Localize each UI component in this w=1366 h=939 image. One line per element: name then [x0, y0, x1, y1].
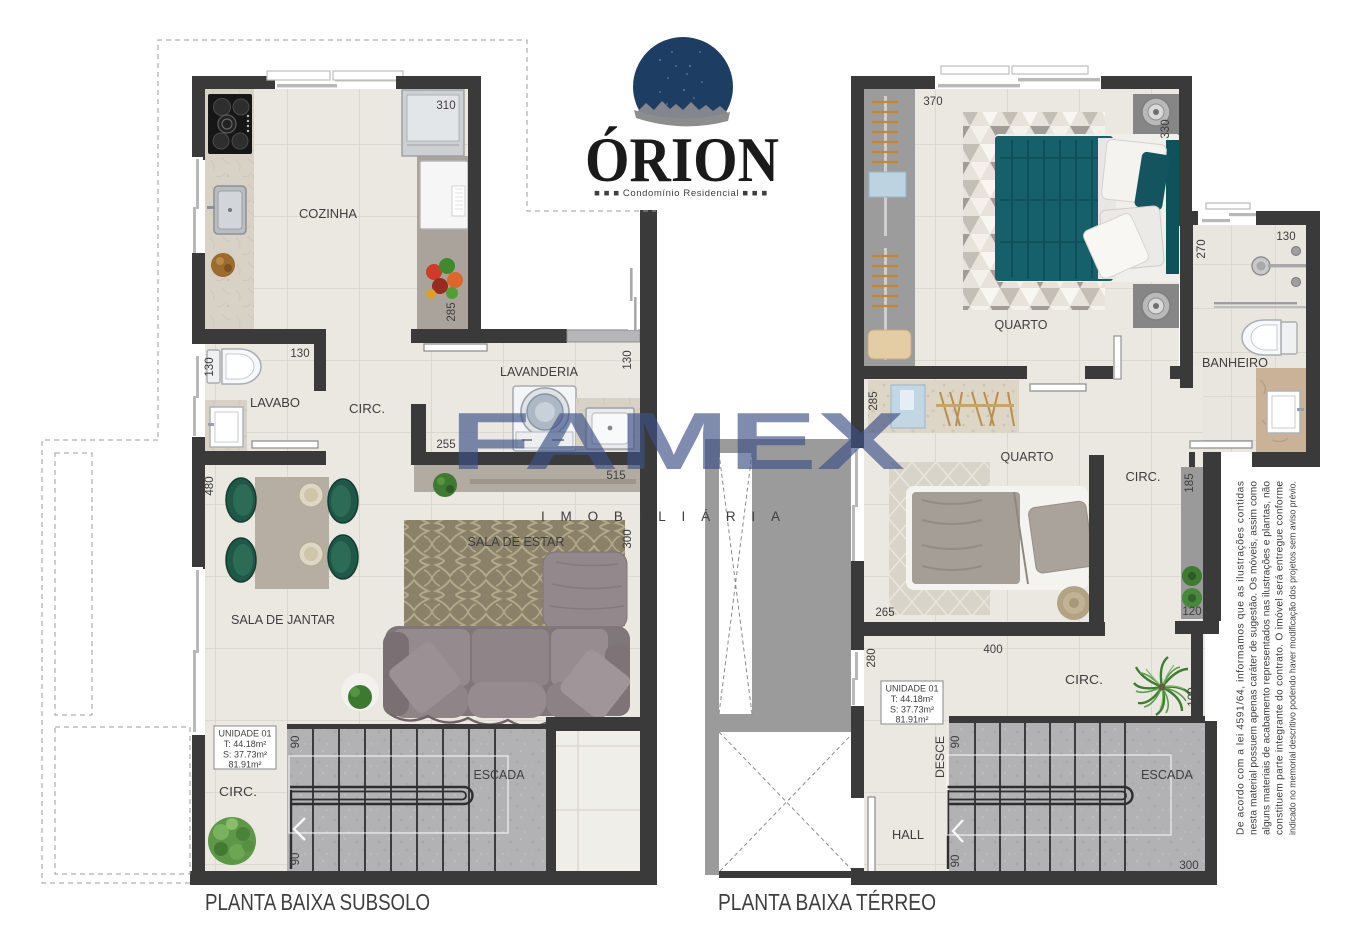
svg-text:alguns materiais de acabamento: alguns materiais de acabamento represent…: [1262, 481, 1273, 835]
svg-text:ÓRION: ÓRION: [585, 124, 779, 195]
svg-text:90: 90: [290, 736, 302, 749]
svg-text:370: 370: [923, 96, 942, 108]
svg-text:T: 44.18m²: T: 44.18m²: [224, 739, 267, 749]
svg-text:130: 130: [290, 348, 309, 360]
svg-text:CIRC.: CIRC.: [1065, 672, 1103, 687]
svg-text:CIRC.: CIRC.: [219, 784, 257, 799]
svg-text:SALA DE JANTAR: SALA DE JANTAR: [231, 612, 335, 627]
svg-text:310: 310: [436, 100, 455, 112]
svg-text:120: 120: [1182, 606, 1201, 618]
svg-text:DESCE: DESCE: [933, 736, 947, 778]
svg-text:90: 90: [950, 736, 962, 749]
svg-text:■ ■ ■ Condomínio Residencial ■: ■ ■ ■ Condomínio Residencial ■ ■ ■: [594, 188, 768, 199]
svg-text:90: 90: [950, 855, 962, 868]
svg-text:S: 37.73m²: S: 37.73m²: [890, 705, 934, 715]
svg-text:300: 300: [622, 529, 634, 548]
svg-text:LAVABO: LAVABO: [250, 395, 300, 410]
svg-text:400: 400: [983, 644, 1002, 656]
svg-text:indicado no memorial descritiv: indicado no memorial descritivo podendo …: [1288, 481, 1299, 835]
svg-text:81.91m²: 81.91m²: [228, 760, 261, 770]
svg-text:280: 280: [866, 648, 878, 667]
svg-text:constituem parte integrante do: constituem parte integrante do contrato.…: [1275, 481, 1286, 835]
svg-text:FAMEX: FAMEX: [450, 397, 905, 487]
svg-text:90: 90: [290, 853, 302, 866]
svg-text:265: 265: [875, 607, 894, 619]
svg-text:270: 270: [1196, 239, 1208, 258]
svg-text:PLANTA BAIXA SUBSOLO: PLANTA BAIXA SUBSOLO: [205, 889, 430, 915]
svg-text:285: 285: [446, 302, 458, 321]
svg-text:ESCADA: ESCADA: [1141, 767, 1193, 782]
svg-text:130: 130: [204, 357, 216, 376]
svg-text:300: 300: [1179, 860, 1198, 872]
svg-text:De acordo com a lei 4591/64, i: De acordo com a lei 4591/64, informamos …: [1236, 481, 1247, 835]
svg-text:81.91m²: 81.91m²: [895, 715, 928, 725]
svg-text:BANHEIRO: BANHEIRO: [1202, 356, 1268, 370]
svg-text:480: 480: [204, 476, 216, 495]
svg-text:QUARTO: QUARTO: [1001, 449, 1054, 464]
svg-text:CIRC.: CIRC.: [1126, 469, 1161, 484]
svg-text:185: 185: [1184, 473, 1196, 492]
svg-text:130: 130: [622, 350, 634, 369]
svg-text:QUARTO: QUARTO: [995, 317, 1048, 332]
svg-text:330: 330: [1160, 119, 1172, 138]
svg-text:PLANTA BAIXA TÉRREO: PLANTA BAIXA TÉRREO: [718, 889, 936, 915]
svg-text:130: 130: [1276, 231, 1295, 243]
svg-text:HALL: HALL: [892, 827, 924, 842]
svg-text:LAVANDERIA: LAVANDERIA: [500, 364, 578, 379]
svg-text:T: 44.18m²: T: 44.18m²: [891, 694, 934, 704]
svg-text:SALA DE ESTAR: SALA DE ESTAR: [468, 534, 565, 549]
svg-text:CIRC.: CIRC.: [349, 401, 385, 416]
svg-text:UNIDADE 01: UNIDADE 01: [885, 684, 938, 694]
svg-text:IMOBILIÁRIA: IMOBILIÁRIA: [541, 509, 791, 524]
svg-text:S: 37.73m²: S: 37.73m²: [223, 750, 267, 760]
svg-text:nesta material possuem apenas: nesta material possuem apenas caráter de…: [1249, 481, 1260, 835]
svg-text:ESCADA: ESCADA: [474, 767, 525, 782]
svg-text:UNIDADE 01: UNIDADE 01: [218, 729, 271, 739]
svg-text:100: 100: [1187, 687, 1199, 706]
svg-text:COZINHA: COZINHA: [299, 206, 357, 221]
